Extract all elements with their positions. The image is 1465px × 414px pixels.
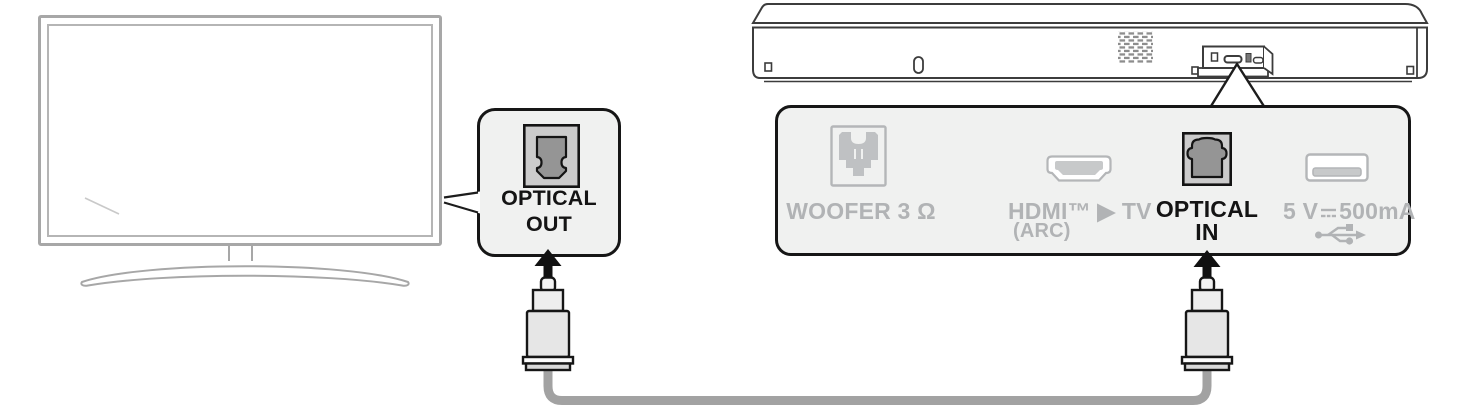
cable-and-pointers-overlay (0, 0, 1465, 414)
optical-cable (548, 371, 1207, 401)
optical-cable-plug-left (523, 278, 573, 371)
connection-diagram: WOOFER 3 Ω HDMI™ ▶ TV (ARC) OPTICAL IN 5… (0, 0, 1465, 414)
up-arrow-left-icon (535, 249, 562, 278)
tv-callout-wedge (444, 192, 480, 214)
optical-cable-plug-right (1182, 278, 1232, 371)
up-arrow-right-icon (1194, 250, 1221, 278)
